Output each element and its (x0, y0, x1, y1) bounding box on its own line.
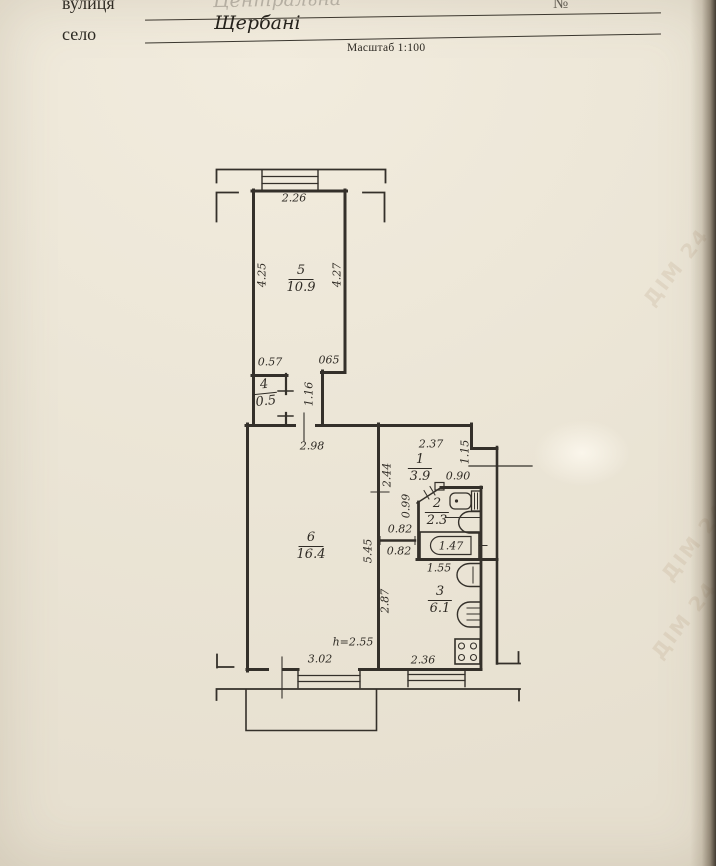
outer-right-wall (497, 447, 520, 664)
dim-room6-bottom: 3.02 (308, 653, 333, 666)
dim-hall-height: 2.44 (381, 463, 394, 488)
wall-stub-top-left (217, 193, 239, 222)
room-area: 0.5 (253, 393, 279, 409)
room-label-3: 3 6.1 (428, 585, 452, 615)
dim-hall-top: 2.37 (419, 438, 444, 451)
dim-hall-width-lower: 0.82 (387, 545, 412, 558)
dim-kitchen-top: 1.55 (427, 562, 452, 575)
entry-niche-walls (472, 424, 498, 449)
paper-light-blotch (534, 420, 630, 486)
dim-entry-depth: 1.15 (459, 440, 472, 465)
room-number: 2 (425, 497, 449, 513)
dim-room5-bottom-left: 0.57 (258, 356, 283, 369)
room-label-5: 5 10.9 (287, 264, 316, 294)
room-label-4: 4 0.5 (251, 377, 278, 410)
room5-window (262, 170, 318, 190)
dim-kitchen-bottom: 2.36 (411, 654, 436, 667)
kitchen-window (408, 669, 465, 687)
dim-room5-bottom-right: 065 (319, 354, 340, 367)
room-label-2: 2 2.3 (425, 497, 449, 527)
room-area: 3.9 (408, 470, 432, 484)
dim-room5-left: 4.25 (256, 263, 269, 288)
dim-room6-right: 5.45 (362, 539, 375, 564)
room-label-6: 6 16.4 (297, 531, 326, 561)
dim-kitchen-left: 2.87 (379, 589, 392, 614)
balcony-outline (246, 690, 377, 731)
room-area: 10.9 (287, 281, 316, 295)
dim-ceiling-height: h=2.55 (333, 636, 374, 649)
room-number: 3 (428, 585, 452, 601)
wall-stub-bottom-left (217, 655, 234, 668)
bathroom-sink-icon (446, 512, 481, 534)
kitchen-sink-icon (457, 564, 481, 587)
dim-room5-right: 4.27 (331, 263, 344, 288)
hallway-door-leaf (380, 537, 415, 545)
dim-corridor-width: 1.16 (303, 382, 316, 407)
room-area: 16.4 (297, 548, 326, 562)
room-number: 1 (408, 453, 432, 469)
wall-stub-top-right (363, 193, 385, 222)
room-label-1: 1 3.9 (408, 453, 432, 483)
dim-room5-top: 2.26 (282, 192, 307, 205)
room-number: 6 (299, 531, 323, 547)
dim-hall-width-mid: 0.82 (388, 523, 413, 536)
page-edge-shadow (690, 0, 716, 866)
room-area: 6.1 (428, 602, 452, 616)
room6-window (298, 669, 360, 688)
dim-entry-width: 0.90 (446, 470, 471, 483)
document-page: вулиця Центральна № село Щербані Масштаб… (0, 0, 716, 866)
dim-hall-width-upper: 0.99 (400, 494, 413, 519)
dim-room6-top: 2.98 (300, 440, 325, 453)
toilet-icon (450, 491, 481, 511)
facade-line (217, 689, 521, 701)
room-number: 5 (289, 264, 313, 280)
dim-bathtub-length: 1.47 (439, 540, 464, 553)
room-area: 2.3 (425, 514, 449, 528)
oven-icon (457, 602, 480, 627)
stove-burners-icon (455, 639, 480, 664)
